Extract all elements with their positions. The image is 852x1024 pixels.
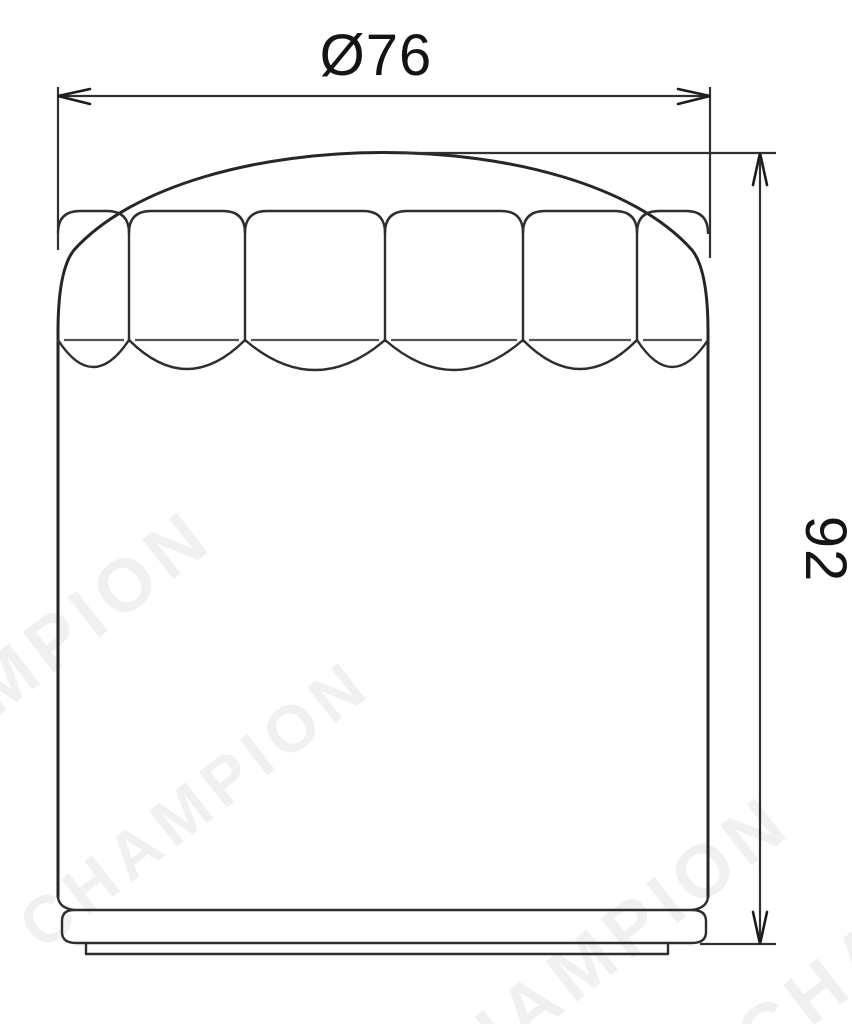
flute-scallop <box>58 340 129 367</box>
flute-scallop <box>385 340 523 370</box>
drawing-canvas: CHAMPION CHAMPION CHAMPION CHAMPION <box>0 0 852 1024</box>
technical-drawing: CHAMPION CHAMPION CHAMPION CHAMPION <box>0 0 852 1024</box>
height-label: 92 <box>793 516 852 583</box>
watermark-text: CHAMPION <box>387 778 806 1024</box>
flute-top <box>523 211 637 233</box>
diameter-label: Ø76 <box>320 23 433 88</box>
flute-scallop <box>245 340 385 370</box>
flute-top <box>129 211 245 233</box>
flute-scallop <box>523 340 637 369</box>
flute-top <box>245 211 385 233</box>
flute-scallop <box>637 340 708 367</box>
flute-scallop <box>129 340 245 369</box>
flute-top <box>385 211 523 233</box>
flute-row <box>58 211 708 370</box>
